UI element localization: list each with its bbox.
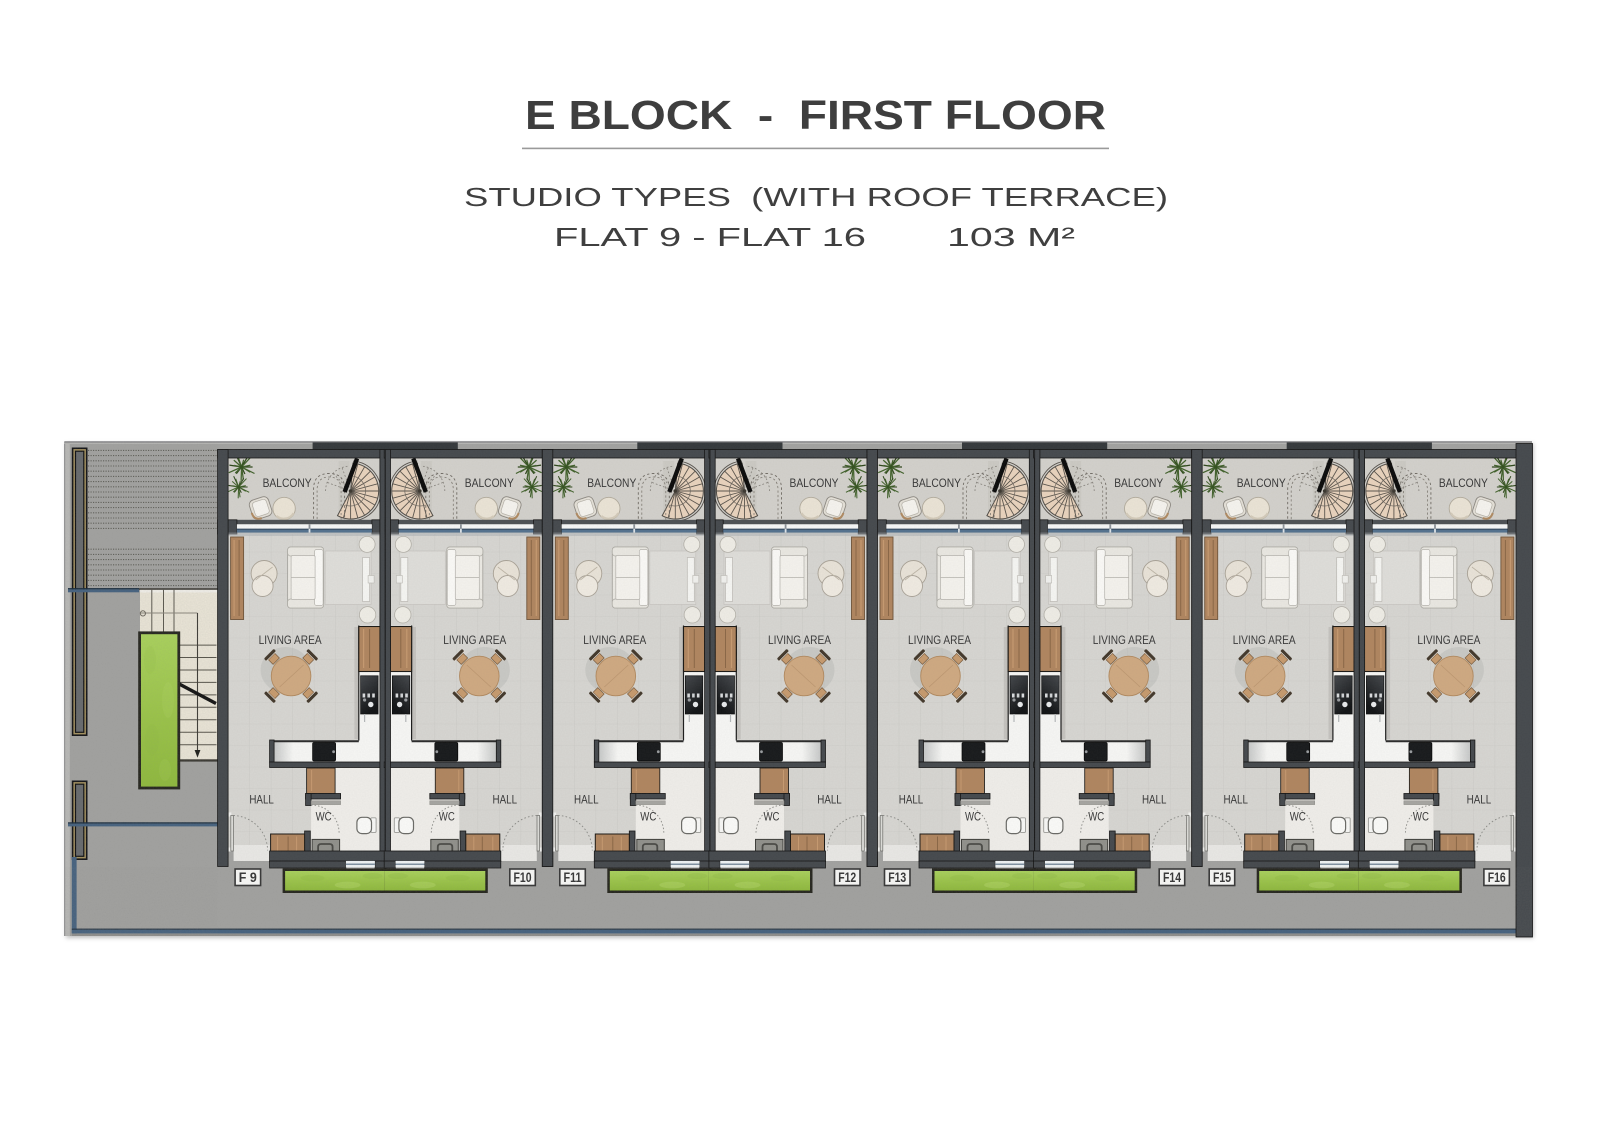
svg-text:WC: WC — [640, 811, 656, 824]
svg-text:F12: F12 — [838, 869, 856, 885]
svg-text:WC: WC — [1413, 811, 1429, 824]
svg-text:E BLOCK - FIRST FLOOR: E BLOCK - FIRST FLOOR — [525, 92, 1106, 138]
svg-text:WC: WC — [1290, 811, 1306, 824]
svg-text:103 M²: 103 M² — [947, 223, 1075, 252]
svg-text:WC: WC — [965, 811, 981, 824]
svg-text:F16: F16 — [1488, 869, 1506, 885]
svg-text:BALCONY: BALCONY — [1114, 476, 1163, 490]
svg-text:HALL: HALL — [574, 793, 599, 807]
svg-text:BALCONY: BALCONY — [587, 476, 636, 490]
svg-text:BALCONY: BALCONY — [790, 476, 839, 490]
svg-text:BALCONY: BALCONY — [263, 476, 312, 490]
svg-text:LIVING AREA: LIVING AREA — [259, 633, 323, 647]
svg-text:WC: WC — [316, 811, 332, 824]
svg-text:STUDIO TYPES (WITH ROOF TERRA: STUDIO TYPES (WITH ROOF TERRACE) — [464, 183, 1168, 212]
svg-text:LIVING AREA: LIVING AREA — [443, 633, 507, 647]
svg-text:HALL: HALL — [493, 793, 518, 807]
svg-text:LIVING AREA: LIVING AREA — [583, 633, 647, 647]
svg-text:BALCONY: BALCONY — [1439, 476, 1488, 490]
svg-text:HALL: HALL — [249, 793, 274, 807]
svg-text:BALCONY: BALCONY — [465, 476, 514, 490]
svg-text:HALL: HALL — [899, 793, 924, 807]
svg-text:F10: F10 — [514, 869, 532, 885]
svg-text:LIVING AREA: LIVING AREA — [1233, 633, 1297, 647]
svg-text:FLAT 9 - FLAT 16: FLAT 9 - FLAT 16 — [554, 223, 866, 252]
svg-text:HALL: HALL — [1142, 793, 1167, 807]
svg-text:BALCONY: BALCONY — [1237, 476, 1286, 490]
svg-text:WC: WC — [439, 811, 455, 824]
svg-text:F14: F14 — [1163, 869, 1181, 885]
svg-text:F11: F11 — [564, 869, 582, 885]
svg-text:F15: F15 — [1213, 869, 1231, 885]
svg-text:LIVING AREA: LIVING AREA — [1093, 633, 1157, 647]
svg-text:BALCONY: BALCONY — [912, 476, 961, 490]
svg-text:WC: WC — [764, 811, 780, 824]
svg-text:WC: WC — [1088, 811, 1104, 824]
svg-text:HALL: HALL — [1467, 793, 1492, 807]
svg-text:F13: F13 — [888, 869, 906, 885]
svg-text:LIVING AREA: LIVING AREA — [1417, 633, 1481, 647]
svg-text:F 9: F 9 — [239, 869, 257, 885]
svg-text:LIVING AREA: LIVING AREA — [768, 633, 832, 647]
svg-text:HALL: HALL — [817, 793, 842, 807]
svg-text:HALL: HALL — [1223, 793, 1248, 807]
svg-text:LIVING AREA: LIVING AREA — [908, 633, 972, 647]
